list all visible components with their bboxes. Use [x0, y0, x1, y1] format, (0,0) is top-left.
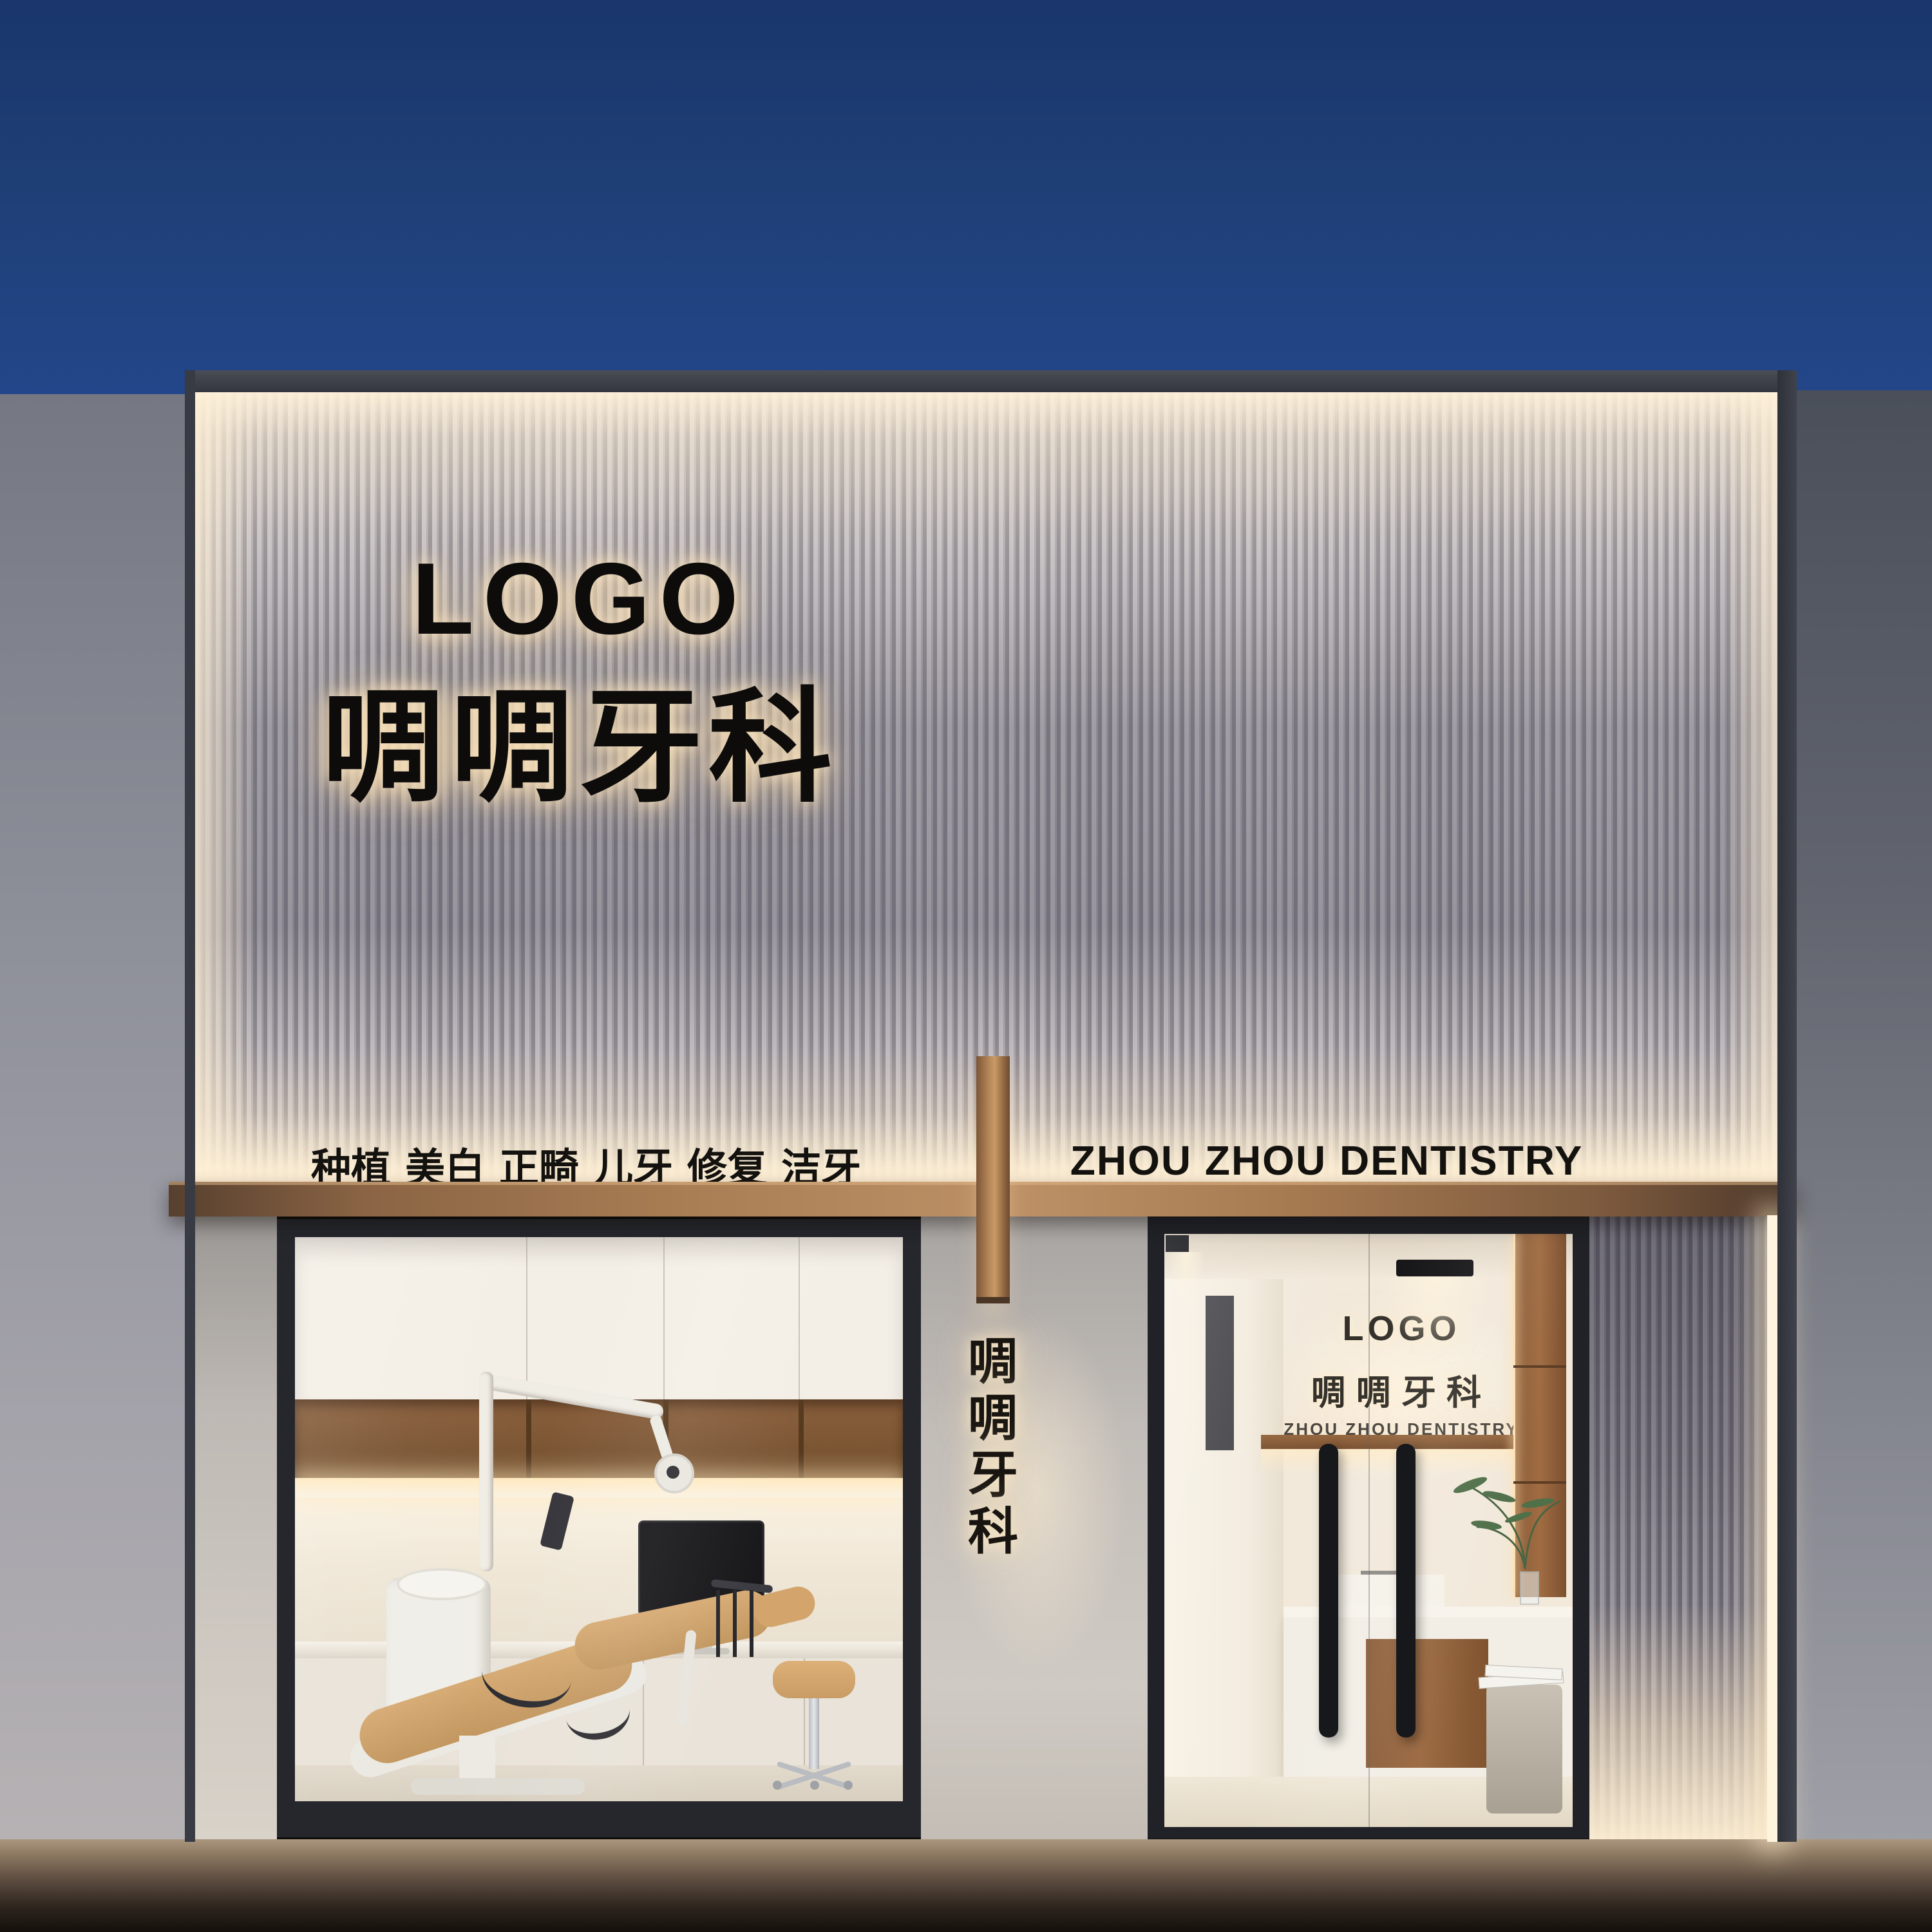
pavement: [0, 1839, 1932, 1932]
dental-lamp-pole: [479, 1372, 493, 1571]
dental-chair-column: [459, 1736, 495, 1781]
facade-frame-left: [185, 370, 195, 1842]
door-glass-seam: [1368, 1234, 1370, 1827]
center-pillar: [921, 1215, 1148, 1842]
main-sign-name-cn: 啁啁牙科: [309, 685, 850, 811]
dental-instrument: [733, 1590, 737, 1657]
treatment-room-interior: [295, 1237, 903, 1801]
left-pillar: [195, 1215, 277, 1842]
treatment-room-window: [277, 1219, 921, 1837]
vertical-sign-char: 科: [968, 1506, 1018, 1557]
main-sign-logo: LOGO: [309, 551, 850, 647]
edge-light-strip: [1767, 1215, 1777, 1842]
doctor-stool-seat: [773, 1661, 855, 1698]
vertical-blade-sign: 啁 啁 牙 科: [960, 1336, 1027, 1557]
bronze-hanging-fin: [976, 1056, 1010, 1303]
cabinet-seam: [526, 1237, 527, 1399]
english-name-sign: ZHOU ZHOU DENTISTRY: [1043, 1137, 1610, 1184]
interior-sign-name-cn: 啁啁牙科: [1273, 1376, 1530, 1410]
wood-ledge: [1261, 1435, 1531, 1449]
dental-instrument: [750, 1590, 753, 1657]
stone-side-table: [1486, 1685, 1562, 1814]
cabinet-seam: [799, 1237, 800, 1399]
stool-caster: [844, 1781, 853, 1790]
glass-vase: [1520, 1571, 1539, 1605]
side-wall-right: [1795, 390, 1932, 1844]
vertical-sign-char: 牙: [968, 1450, 1018, 1500]
potted-plant: [1441, 1466, 1564, 1575]
hallway-doorway: [1206, 1296, 1234, 1450]
dental-instrument: [716, 1590, 720, 1657]
facade-frame-right: [1777, 370, 1797, 1842]
wood-shelf-niche: [295, 1399, 903, 1478]
facade-frame-top: [185, 370, 1797, 392]
wood-shelf-line: [1513, 1365, 1566, 1368]
dental-chair-base: [411, 1778, 585, 1795]
ceiling-spot-light: [1166, 1235, 1189, 1252]
desk-wood-panel: [1366, 1639, 1488, 1768]
ceiling-track-light: [1396, 1260, 1473, 1276]
door-handle-right: [1396, 1444, 1416, 1738]
shelf-divider: [799, 1399, 804, 1478]
side-wall-left: [0, 394, 187, 1844]
entrance-door: LOGO 啁啁牙科 ZHOU ZHOU DENTISTRY: [1148, 1217, 1589, 1839]
upper-cabinets: [295, 1237, 903, 1399]
night-sky: [0, 0, 1932, 394]
storefront-scene: LOGO 啁啁牙科 种植 美白 正畸 儿牙 修复 洁牙 ZHOU ZHOU DE…: [0, 0, 1932, 1932]
stool-caster: [773, 1781, 782, 1790]
under-shelf-light: [295, 1478, 903, 1497]
main-facade-sign: LOGO 啁啁牙科: [309, 551, 850, 811]
shelf-divider: [526, 1399, 531, 1478]
cabinet-seam: [663, 1237, 665, 1399]
clinic-facade: LOGO 啁啁牙科 种植 美白 正畸 儿牙 修复 洁牙 ZHOU ZHOU DE…: [185, 370, 1797, 1842]
dental-lamp-head: [654, 1454, 694, 1493]
vertical-sign-char: 啁: [968, 1393, 1018, 1443]
doctor-stool-column: [809, 1698, 819, 1769]
right-slat-panel: [1589, 1215, 1767, 1842]
reception-interior: LOGO 啁啁牙科 ZHOU ZHOU DENTISTRY: [1164, 1234, 1573, 1827]
door-handle-left: [1319, 1444, 1338, 1738]
stool-caster: [810, 1781, 819, 1790]
spittoon-bowl: [397, 1568, 487, 1600]
reception-counter-riser: [1329, 1575, 1444, 1607]
vertical-sign-char: 啁: [968, 1336, 1018, 1387]
